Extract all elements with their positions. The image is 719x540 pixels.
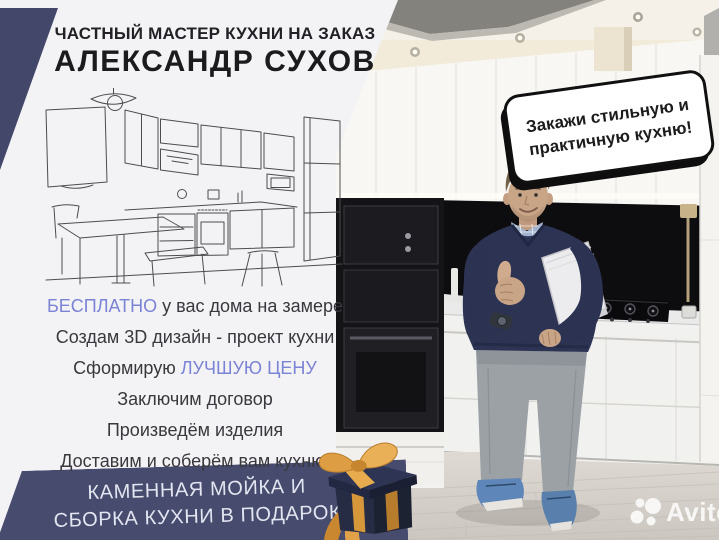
- gift-box-icon: [312, 438, 432, 540]
- figure-shadow: [456, 500, 600, 526]
- header-tagline: ЧАСТНЫЙ МАСТЕР КУХНИ НА ЗАКАЗ: [45, 24, 385, 43]
- avito-logo-icon: [628, 494, 662, 530]
- service-free: БЕСПЛАТНО у вас дома на замере: [20, 291, 370, 322]
- master-name: АЛЕКСАНДР СУХОВ: [45, 45, 385, 79]
- avito-brand-text: Avito: [666, 497, 719, 528]
- kitchen-sketch: [32, 88, 357, 290]
- service-design: Создам 3D дизайн - проект кухни: [20, 322, 370, 353]
- sketch-tall-unit: [304, 117, 340, 261]
- sketch-counter: [125, 190, 297, 257]
- poster-canvas: ЧАСТНЫЙ МАСТЕР КУХНИ НА ЗАКАЗ АЛЕКСАНДР …: [0, 0, 719, 540]
- avito-watermark: Avito: [628, 494, 719, 530]
- price-accent: ЛУЧШУЮ ЦЕНУ: [181, 358, 317, 378]
- header: ЧАСТНЫЙ МАСТЕР КУХНИ НА ЗАКАЗ АЛЕКСАНДР …: [45, 24, 385, 79]
- vent-duct: [594, 27, 632, 71]
- wall-outlet: [682, 306, 696, 318]
- free-accent: БЕСПЛАТНО: [47, 296, 157, 316]
- sketch-window: [46, 107, 107, 187]
- sketch-floor-line: [46, 264, 342, 280]
- sketch-cabinets: [125, 110, 294, 191]
- service-contract: Заключим договор: [20, 384, 370, 415]
- service-price: Сформирую ЛУЧШУЮ ЦЕНУ: [20, 353, 370, 384]
